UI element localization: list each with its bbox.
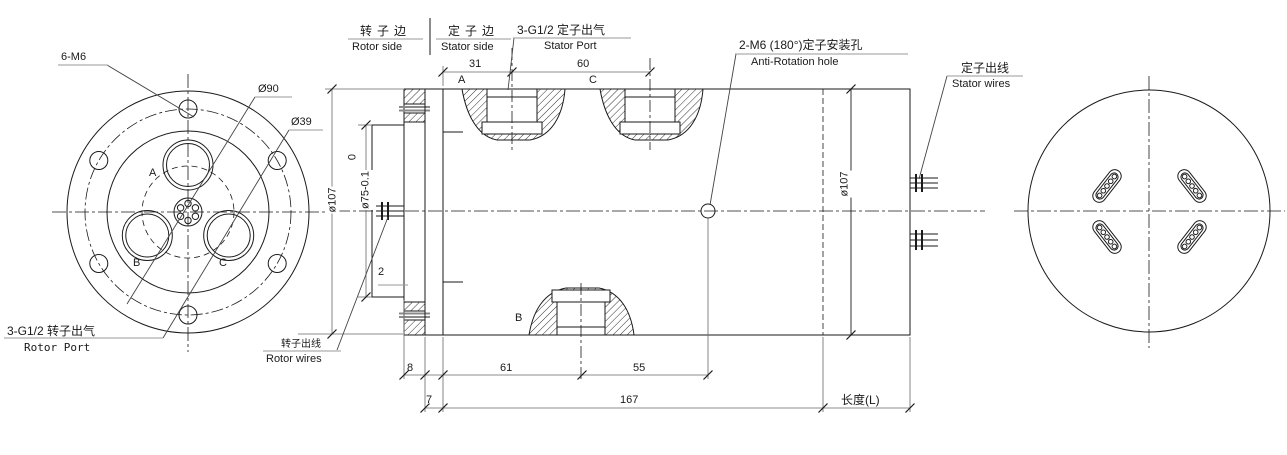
dim-7: 7: [426, 394, 432, 407]
stator-port-label-cn: 3-G1/2 定子出气: [517, 23, 605, 37]
rotor-wire-bundle: [376, 202, 404, 220]
stator-wires-label-cn: 定子出线: [961, 61, 1009, 75]
left-port-b-label: B: [133, 257, 140, 270]
label-rules: [4, 18, 1023, 351]
dim-107-right: ø107: [839, 170, 852, 197]
leader-lines: [107, 38, 947, 350]
dim-167: 167: [620, 394, 638, 407]
rotor-port-label-cn: 3-G1/2 转子出气: [7, 324, 95, 338]
stator-side-label-cn: 定子边: [448, 24, 499, 38]
left-view: [52, 74, 326, 352]
section-port-a-label: A: [458, 74, 465, 87]
dim-2: 2: [378, 266, 384, 279]
stator-port-label-en: Stator Port: [544, 40, 597, 53]
rotor-port-label-en: Rotor Port: [24, 341, 90, 354]
bearing-cap: [425, 89, 443, 335]
engineering-drawing-slip-ring: 6-M6 Ø90 Ø39 A B C 3-G1/2 转子出气 Rotor Por…: [0, 0, 1287, 455]
drawing-linework: [0, 0, 1287, 455]
wire-slot-lower-left: [1090, 218, 1124, 256]
dim-75-tolerance: 0: [347, 153, 360, 161]
rotor-wires-label-cn: 转子出线: [281, 338, 321, 352]
dim-61: 61: [500, 362, 512, 375]
dimension-lines: [298, 66, 910, 412]
stator-wires-label-en: Stator wires: [952, 78, 1010, 91]
dim-55: 55: [633, 362, 645, 375]
dim-31: 31: [469, 58, 481, 71]
dim-107-left: ø107: [327, 186, 340, 213]
stator-side-label-en: Stator side: [441, 41, 494, 54]
dim-75: ø75-0.1: [360, 170, 373, 210]
rotor-side-label-cn: 转子边: [360, 24, 411, 38]
dim-8: 8: [407, 362, 413, 375]
dia90-label: Ø90: [258, 83, 279, 96]
stator-wire-bundle-bottom: [910, 230, 938, 250]
dim-length-l: 长度(L): [841, 393, 880, 407]
anti-rotation-label-cn: 2-M6 (180°)定子安装孔: [739, 38, 863, 52]
wire-slot-upper-right: [1175, 167, 1209, 205]
stator-wire-bundle-top: [910, 174, 938, 192]
dia39-label: Ø39: [291, 116, 312, 129]
rotor-flange: [404, 89, 425, 335]
section-port-b-label: B: [515, 312, 522, 325]
wire-slot-upper-left: [1090, 167, 1124, 205]
rotor-wires-label-en: Rotor wires: [266, 353, 322, 366]
bolt-pattern-label: 6-M6: [61, 51, 86, 64]
section-view: [336, 48, 985, 379]
left-port-c-label: C: [219, 257, 227, 270]
dim-60: 60: [577, 58, 589, 71]
rotor-side-label-en: Rotor side: [352, 41, 402, 54]
left-port-a-label: A: [149, 167, 156, 180]
anti-rotation-label-en: Anti-Rotation hole: [751, 56, 838, 69]
right-view: [1014, 76, 1285, 348]
stator-port-b: [529, 283, 634, 379]
section-port-c-label: C: [589, 74, 597, 87]
wire-slot-lower-right: [1175, 218, 1209, 256]
